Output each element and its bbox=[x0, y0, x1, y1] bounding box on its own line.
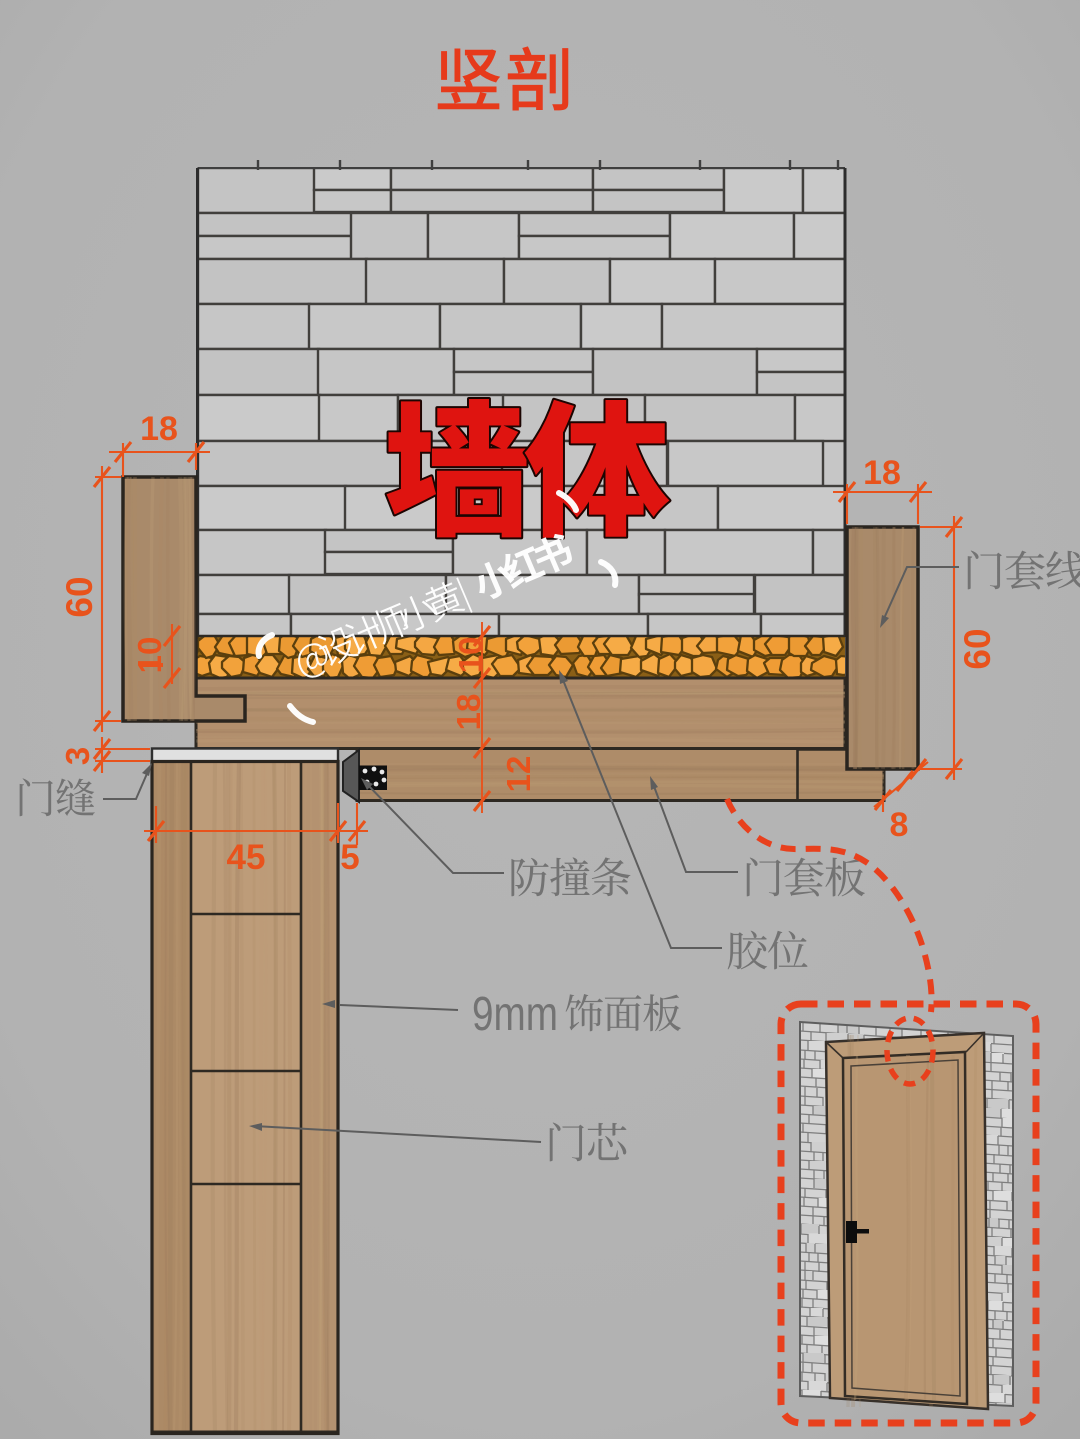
svg-text:9mm: 9mm bbox=[472, 988, 558, 1041]
svg-text:10: 10 bbox=[452, 637, 489, 674]
svg-text:60: 60 bbox=[59, 576, 100, 617]
svg-text:18: 18 bbox=[140, 410, 178, 448]
svg-text:45: 45 bbox=[227, 838, 266, 877]
svg-text:12: 12 bbox=[500, 756, 537, 793]
svg-text:18: 18 bbox=[450, 694, 487, 731]
svg-text:5: 5 bbox=[340, 838, 359, 877]
svg-text:18: 18 bbox=[863, 454, 901, 492]
svg-text:10: 10 bbox=[131, 637, 168, 674]
svg-text:60: 60 bbox=[957, 628, 998, 669]
svg-text:3: 3 bbox=[59, 747, 96, 765]
svg-text:8: 8 bbox=[890, 806, 909, 844]
